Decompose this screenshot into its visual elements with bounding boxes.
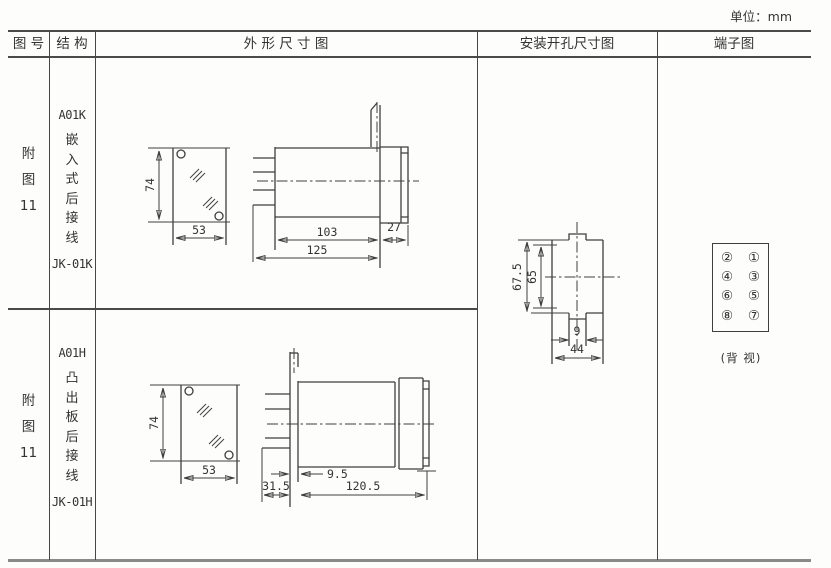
terminal-row: ⑧ ⑦ xyxy=(721,310,760,324)
structure-cell-row2: A01H 凸 出 板 后 接 线 JK-01H xyxy=(49,346,95,509)
front-view: 74 53 xyxy=(143,148,230,245)
model-name-top: A01H xyxy=(49,346,95,360)
structure-description: 嵌 入 式 后 接 线 xyxy=(49,131,95,248)
header-figure-no: 图 号 xyxy=(8,34,49,54)
unit-label: 单位：mm xyxy=(640,6,792,25)
dim-panel-offset: 9.5 xyxy=(327,467,348,481)
structure-char: 嵌 xyxy=(49,131,95,151)
figure-line: 图 xyxy=(8,414,49,440)
figure-no-cell-row1: 附 图 11 xyxy=(8,141,49,219)
hatch-marks xyxy=(190,169,218,210)
side-view: 103 27 125 xyxy=(253,102,419,268)
dim-front-length: 120.5 xyxy=(346,479,381,493)
dim-total-length: 125 xyxy=(307,243,328,257)
dim-front-height: 74 xyxy=(147,416,161,430)
dim-front-height: 74 xyxy=(143,178,157,192)
structure-char: 后 xyxy=(49,428,95,448)
structure-description: 凸 出 板 后 接 线 xyxy=(49,369,95,486)
model-name-top: A01K xyxy=(49,108,95,122)
header-mounting: 安装开孔尺寸图 xyxy=(477,34,657,54)
figure-line: 附 xyxy=(8,141,49,167)
structure-char: 线 xyxy=(49,467,95,487)
terminal-pin-3: ③ xyxy=(748,271,760,285)
side-view: 9.5 31.5 120.5 xyxy=(262,348,437,507)
dim-front-width: 53 xyxy=(192,223,206,237)
cutout-dimensions: 67.5 65 9 44 xyxy=(510,242,603,358)
figure-line: 11 xyxy=(8,193,49,219)
mounting-hole-drawing: 67.5 65 9 44 xyxy=(477,57,657,561)
table-top-border xyxy=(8,30,811,32)
figure-line: 附 xyxy=(8,388,49,414)
terminal-row: ④ ③ xyxy=(721,271,760,285)
dim-inner-height: 65 xyxy=(525,270,539,284)
structure-char: 线 xyxy=(49,229,95,249)
outline-drawing-jk01h: 74 53 xyxy=(95,309,477,561)
figure-no-cell-row2: 附 图 11 xyxy=(8,388,49,466)
dim-body-length: 103 xyxy=(317,225,338,239)
header-outline: 外 形 尺 寸 图 xyxy=(95,34,477,54)
terminal-diagram: ② ① ④ ③ ⑥ ⑤ ⑧ ⑦ xyxy=(712,243,769,332)
structure-char: 接 xyxy=(49,209,95,229)
terminal-row: ⑥ ⑤ xyxy=(721,290,760,304)
model-name-bottom: JK-01K xyxy=(49,257,95,271)
structure-char: 入 xyxy=(49,151,95,171)
dim-bezel-depth: 27 xyxy=(387,220,401,234)
front-view: 74 53 xyxy=(147,385,240,484)
datasheet-page: 单位：mm 图 号 结 构 外 形 尺 寸 图 安装开孔尺寸图 端子图 附 图 … xyxy=(0,0,831,568)
model-name-bottom: JK-01H xyxy=(49,495,95,509)
structure-char: 式 xyxy=(49,170,95,190)
dim-rear-depth: 31.5 xyxy=(262,479,290,493)
terminal-pin-5: ⑤ xyxy=(748,290,760,304)
terminal-pin-4: ④ xyxy=(721,271,733,285)
hatch-marks xyxy=(197,404,224,448)
terminal-pin-1: ① xyxy=(748,252,760,266)
outline-drawing-jk01k: 74 53 103 2 xyxy=(95,57,477,309)
terminal-pin-6: ⑥ xyxy=(721,290,733,304)
structure-char: 后 xyxy=(49,190,95,210)
terminal-pin-2: ② xyxy=(721,252,733,266)
terminal-pin-7: ⑦ xyxy=(748,310,760,324)
dim-notch-width: 9 xyxy=(574,324,581,338)
terminal-row: ② ① xyxy=(721,252,760,266)
terminal-view-caption: (背 视) xyxy=(700,350,782,366)
structure-char: 凸 xyxy=(49,369,95,389)
figure-line: 11 xyxy=(8,440,49,466)
structure-char: 接 xyxy=(49,447,95,467)
dim-cutout-width: 44 xyxy=(570,342,584,356)
figure-line: 图 xyxy=(8,167,49,193)
structure-char: 板 xyxy=(49,408,95,428)
header-structure: 结 构 xyxy=(49,34,95,54)
structure-char: 出 xyxy=(49,389,95,409)
terminal-pin-8: ⑧ xyxy=(721,310,733,324)
header-terminal: 端子图 xyxy=(657,34,811,54)
dim-outer-height: 67.5 xyxy=(510,263,524,291)
structure-cell-row1: A01K 嵌 入 式 后 接 线 JK-01K xyxy=(49,108,95,271)
dim-front-width: 53 xyxy=(202,463,216,477)
